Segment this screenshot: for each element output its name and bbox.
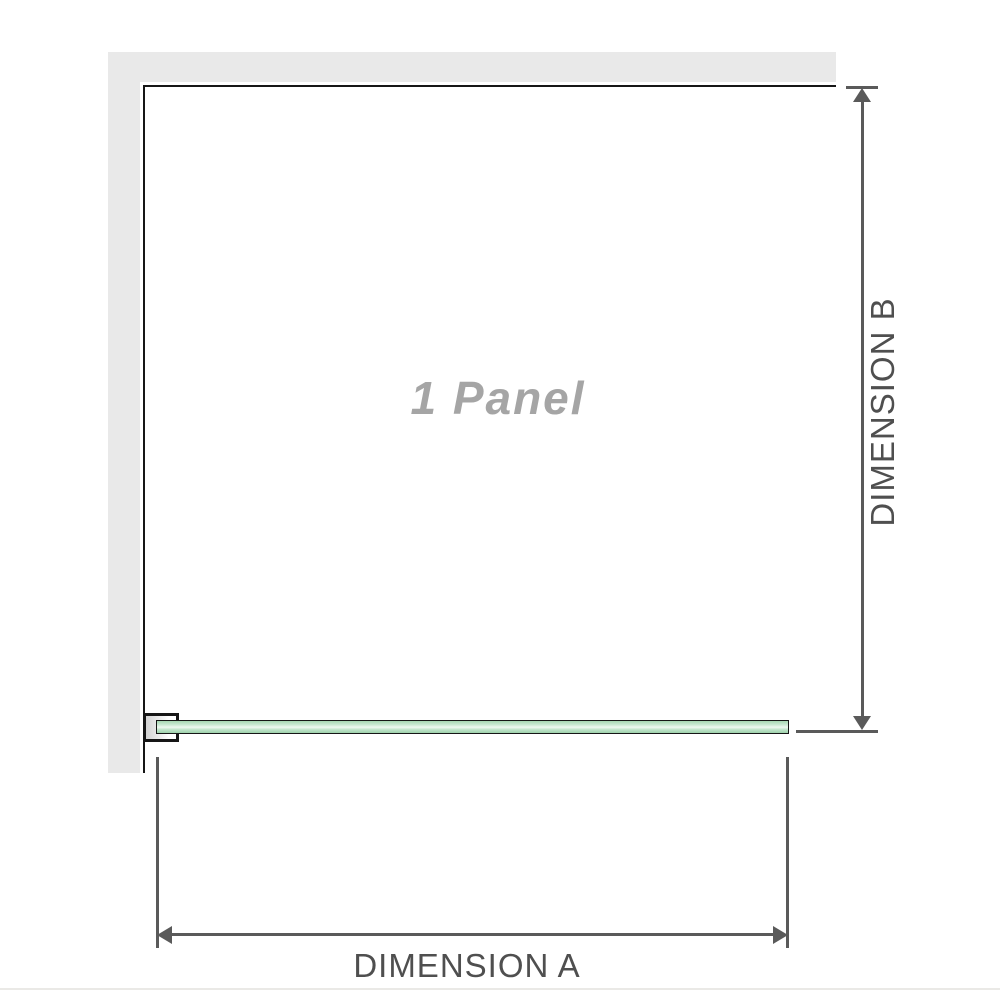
glass-panel-bar <box>156 720 789 734</box>
wall-vertical <box>108 52 140 773</box>
dimension-a-label: DIMENSION A <box>317 949 617 983</box>
dimension-b-bottom-tick <box>796 730 878 733</box>
dimension-b-label: DIMENSION B <box>865 262 901 562</box>
bottom-divider <box>0 988 1000 990</box>
panel-outline-left <box>143 85 145 773</box>
arrowhead-left-icon <box>157 926 172 944</box>
arrowhead-down-icon <box>853 716 871 730</box>
wall-horizontal <box>108 52 836 82</box>
panel-label: 1 Panel <box>348 372 648 424</box>
diagram-canvas: 1 Panel DIMENSION B DIMENSION A <box>0 0 1000 1000</box>
arrowhead-right-icon <box>773 926 788 944</box>
dimension-a-left-tick <box>156 757 159 948</box>
arrowhead-up-icon <box>853 88 871 102</box>
dimension-a-line <box>170 933 776 936</box>
dimension-a-right-tick <box>786 757 789 948</box>
panel-outline-top <box>143 85 836 87</box>
